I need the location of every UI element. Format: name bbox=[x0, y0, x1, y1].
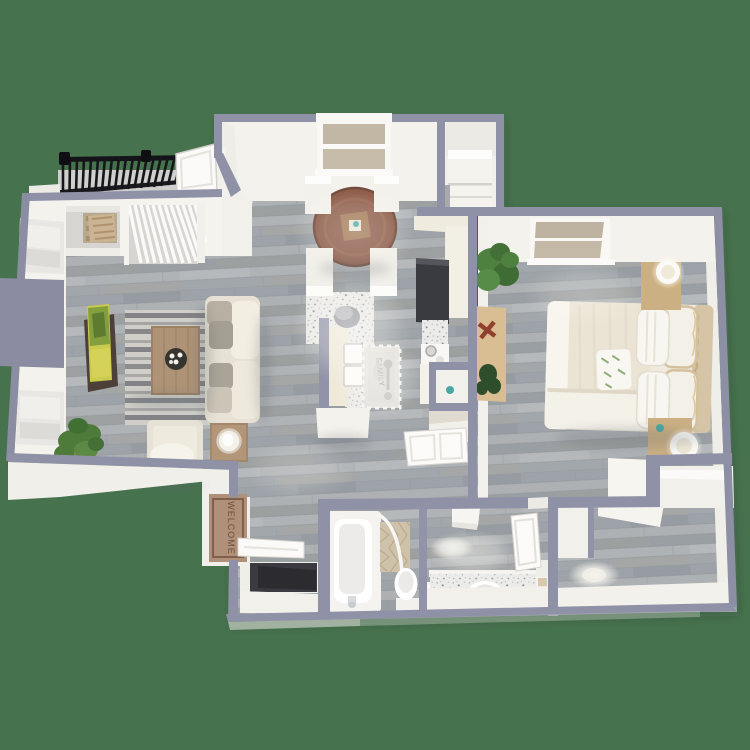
svg-text:WELCOME: WELCOME bbox=[226, 501, 236, 555]
